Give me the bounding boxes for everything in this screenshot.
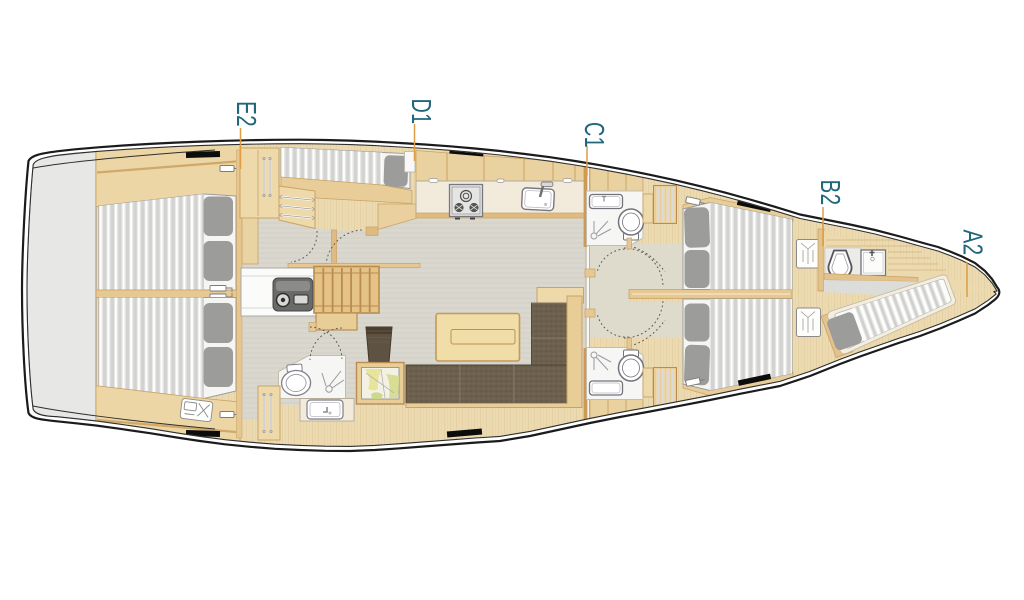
svg-text:B2: B2 (815, 180, 846, 206)
svg-text:D1: D1 (406, 99, 437, 125)
svg-text:C1: C1 (579, 122, 610, 148)
svg-text:A2: A2 (958, 230, 989, 256)
svg-text:E2: E2 (231, 101, 262, 127)
